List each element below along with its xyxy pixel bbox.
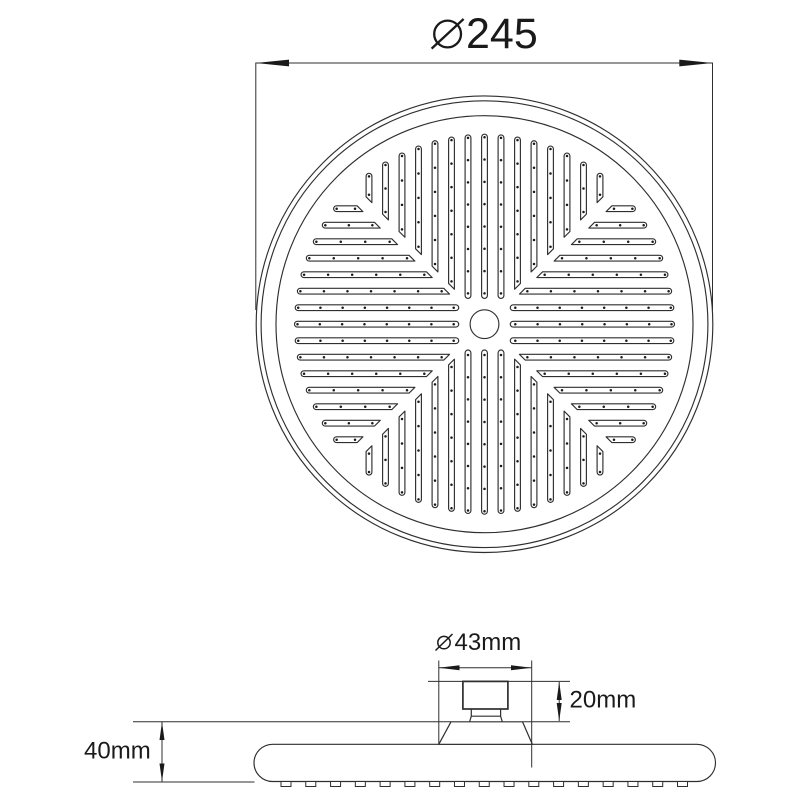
svg-text:43mm: 43mm bbox=[455, 629, 522, 656]
svg-text:245: 245 bbox=[466, 10, 538, 58]
svg-text:20mm: 20mm bbox=[570, 687, 637, 714]
svg-text:40mm: 40mm bbox=[84, 738, 151, 765]
